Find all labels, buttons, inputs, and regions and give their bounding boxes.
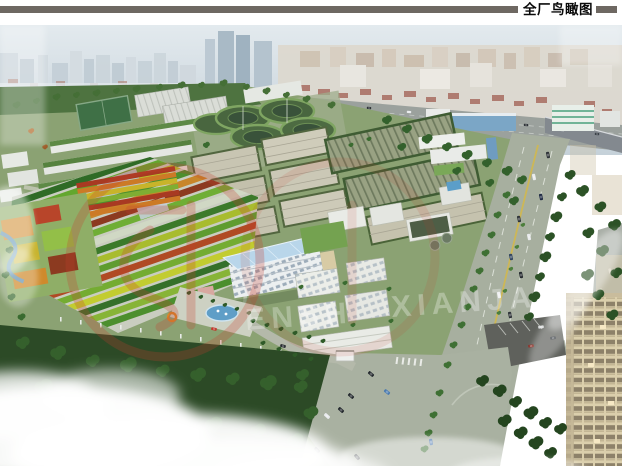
report-page: 全厂鸟瞰图 bbox=[0, 0, 622, 466]
page-title: 全厂鸟瞰图 bbox=[523, 0, 593, 20]
aerial-rendering: ENSH XIANJA bbox=[0, 25, 622, 466]
header-rule-left bbox=[0, 6, 518, 13]
header-rule-right bbox=[596, 6, 617, 13]
